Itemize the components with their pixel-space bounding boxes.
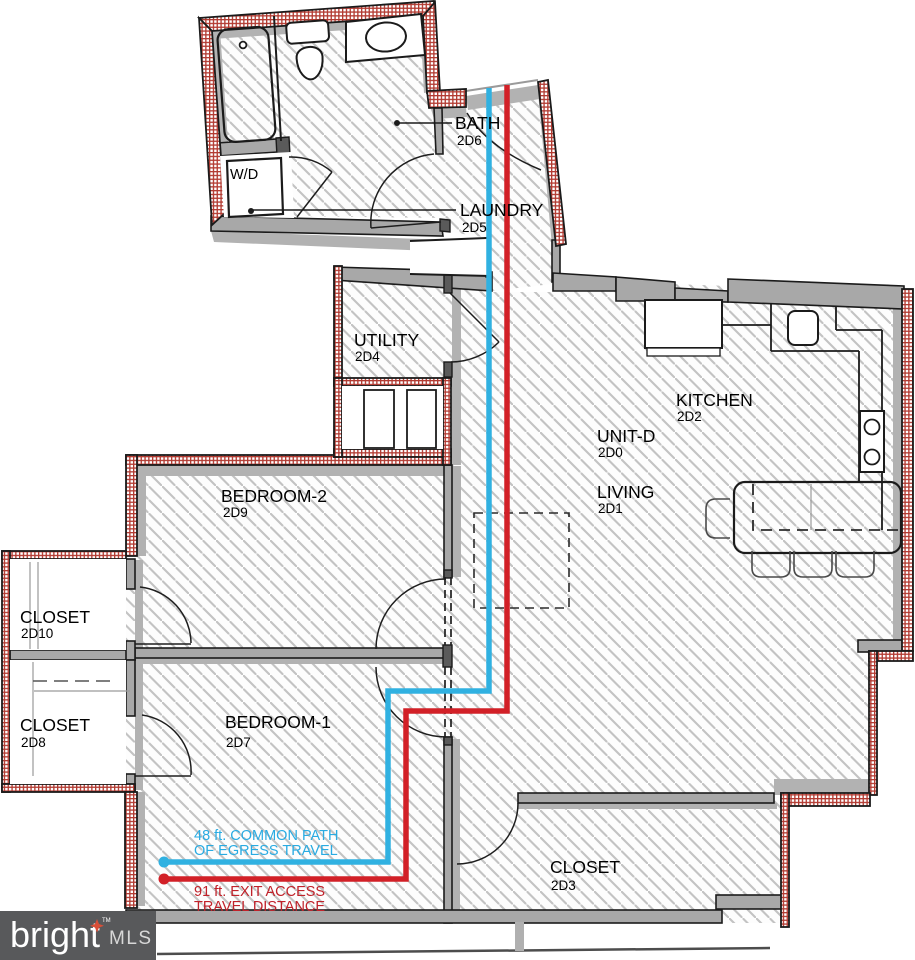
svg-text:2D4: 2D4 — [355, 349, 380, 364]
svg-text:UTILITY: UTILITY — [354, 330, 419, 350]
svg-text:MLS: MLS — [109, 928, 153, 949]
svg-text:48 ft. COMMON PATH: 48 ft. COMMON PATH — [194, 828, 338, 844]
svg-text:BEDROOM-2: BEDROOM-2 — [221, 486, 327, 506]
svg-text:2D7: 2D7 — [226, 735, 251, 750]
svg-text:2D10: 2D10 — [21, 626, 53, 641]
svg-text:CLOSET: CLOSET — [20, 607, 90, 627]
svg-text:CLOSET: CLOSET — [20, 715, 90, 735]
svg-text:2D0: 2D0 — [598, 445, 623, 460]
svg-text:2D2: 2D2 — [677, 409, 702, 424]
svg-text:2D1: 2D1 — [598, 501, 623, 516]
svg-text:LAUNDRY: LAUNDRY — [460, 200, 544, 220]
svg-text:2D3: 2D3 — [551, 878, 576, 893]
svg-text:KITCHEN: KITCHEN — [676, 390, 753, 410]
svg-text:bright: bright — [10, 914, 100, 955]
svg-text:TRAVEL DISTANCE: TRAVEL DISTANCE — [194, 899, 325, 915]
svg-text:LIVING: LIVING — [597, 482, 654, 502]
svg-text:2D6: 2D6 — [457, 133, 482, 148]
svg-text:CLOSET: CLOSET — [550, 857, 620, 877]
svg-text:UNIT-D: UNIT-D — [597, 426, 655, 446]
svg-text:BEDROOM-1: BEDROOM-1 — [225, 712, 331, 732]
svg-text:W/D: W/D — [230, 167, 258, 183]
svg-text:TM: TM — [102, 918, 111, 924]
svg-text:OF EGRESS TRAVEL: OF EGRESS TRAVEL — [194, 843, 338, 859]
svg-text:2D9: 2D9 — [223, 505, 248, 520]
svg-text:2D8: 2D8 — [21, 735, 46, 750]
svg-text:BATH: BATH — [455, 113, 500, 133]
svg-text:91 ft. EXIT ACCESS: 91 ft. EXIT ACCESS — [194, 884, 325, 900]
svg-text:2D5: 2D5 — [462, 220, 487, 235]
